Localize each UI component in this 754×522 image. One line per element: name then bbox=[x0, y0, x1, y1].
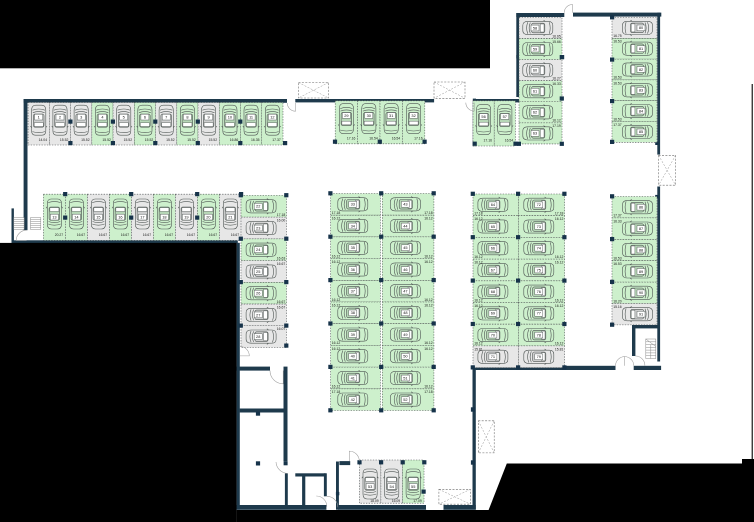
svg-text:17: 17 bbox=[140, 214, 144, 219]
svg-text:3: 3 bbox=[80, 115, 82, 120]
svg-text:15.52: 15.52 bbox=[102, 138, 111, 142]
svg-text:65: 65 bbox=[491, 224, 495, 229]
svg-text:17.18: 17.18 bbox=[424, 211, 433, 215]
svg-text:20.27: 20.27 bbox=[55, 233, 64, 237]
svg-text:58: 58 bbox=[533, 25, 537, 30]
svg-text:18.09: 18.09 bbox=[370, 499, 379, 503]
svg-text:16.07: 16.07 bbox=[277, 327, 286, 331]
svg-text:62: 62 bbox=[533, 110, 537, 115]
svg-text:67: 67 bbox=[491, 267, 495, 272]
svg-text:16.67: 16.67 bbox=[99, 233, 108, 237]
svg-text:16.12: 16.12 bbox=[424, 385, 433, 389]
svg-text:16.12: 16.12 bbox=[552, 119, 561, 123]
svg-text:16.12: 16.12 bbox=[474, 261, 483, 265]
svg-text:16.67: 16.67 bbox=[209, 233, 218, 237]
svg-text:16.54: 16.54 bbox=[369, 137, 378, 141]
svg-text:87: 87 bbox=[639, 226, 643, 231]
svg-text:16.12: 16.12 bbox=[332, 347, 341, 351]
svg-text:16.12: 16.12 bbox=[332, 298, 341, 302]
svg-text:16.12: 16.12 bbox=[332, 303, 341, 307]
svg-text:76: 76 bbox=[537, 289, 541, 294]
svg-text:83: 83 bbox=[639, 88, 643, 93]
svg-text:45: 45 bbox=[403, 245, 407, 250]
svg-text:16.12: 16.12 bbox=[332, 217, 341, 221]
svg-text:16.12: 16.12 bbox=[555, 298, 564, 302]
svg-text:36: 36 bbox=[351, 267, 355, 272]
svg-text:15.52: 15.52 bbox=[145, 138, 154, 142]
svg-text:37: 37 bbox=[351, 289, 355, 294]
svg-text:31: 31 bbox=[389, 113, 393, 118]
svg-text:16.67: 16.67 bbox=[165, 233, 174, 237]
svg-text:53: 53 bbox=[368, 484, 372, 489]
svg-text:68: 68 bbox=[491, 289, 495, 294]
svg-text:16.53: 16.53 bbox=[613, 76, 622, 80]
svg-text:8: 8 bbox=[186, 115, 188, 120]
svg-text:16.12: 16.12 bbox=[332, 341, 341, 345]
svg-text:16.12: 16.12 bbox=[424, 341, 433, 345]
svg-text:16.67: 16.67 bbox=[231, 233, 240, 237]
svg-text:17.16: 17.16 bbox=[347, 137, 356, 141]
svg-text:9: 9 bbox=[208, 115, 210, 120]
svg-text:82: 82 bbox=[639, 67, 643, 72]
svg-text:17.09: 17.09 bbox=[413, 499, 422, 503]
svg-text:16.35: 16.35 bbox=[251, 138, 260, 142]
svg-text:15.16: 15.16 bbox=[613, 305, 622, 309]
svg-text:16.53: 16.53 bbox=[613, 40, 622, 44]
svg-text:16.33: 16.33 bbox=[552, 82, 561, 86]
svg-text:16.12: 16.12 bbox=[424, 347, 433, 351]
svg-text:17.16: 17.16 bbox=[484, 139, 493, 143]
svg-text:16: 16 bbox=[118, 214, 122, 219]
svg-text:66: 66 bbox=[491, 246, 495, 251]
svg-text:16.12: 16.12 bbox=[332, 260, 341, 264]
svg-text:12: 12 bbox=[270, 115, 274, 120]
svg-text:35: 35 bbox=[351, 245, 355, 250]
svg-text:55: 55 bbox=[411, 484, 415, 489]
svg-text:88: 88 bbox=[639, 247, 643, 252]
svg-text:73: 73 bbox=[537, 224, 541, 229]
svg-text:15.52: 15.52 bbox=[60, 138, 69, 142]
svg-text:15: 15 bbox=[96, 214, 100, 219]
svg-text:16.12: 16.12 bbox=[424, 303, 433, 307]
svg-text:27: 27 bbox=[256, 312, 260, 317]
svg-text:22: 22 bbox=[256, 204, 260, 209]
svg-text:2: 2 bbox=[59, 115, 61, 120]
svg-text:15.52: 15.52 bbox=[166, 138, 175, 142]
svg-text:16.12: 16.12 bbox=[555, 217, 564, 221]
svg-text:25: 25 bbox=[256, 269, 260, 274]
svg-text:41: 41 bbox=[351, 375, 355, 380]
svg-text:15.81: 15.81 bbox=[474, 347, 483, 351]
svg-text:16.53: 16.53 bbox=[613, 81, 622, 85]
svg-text:15.66: 15.66 bbox=[552, 40, 561, 44]
svg-text:42: 42 bbox=[351, 397, 355, 402]
svg-text:63: 63 bbox=[533, 131, 537, 136]
svg-text:17.16: 17.16 bbox=[414, 137, 423, 141]
svg-text:1: 1 bbox=[38, 115, 40, 120]
svg-text:17.18: 17.18 bbox=[277, 213, 286, 217]
svg-text:23: 23 bbox=[256, 225, 260, 230]
svg-text:32: 32 bbox=[411, 113, 415, 118]
svg-text:57: 57 bbox=[503, 114, 507, 119]
svg-text:16.12: 16.12 bbox=[555, 261, 564, 265]
svg-text:16.12: 16.12 bbox=[332, 254, 341, 258]
svg-text:16.67: 16.67 bbox=[277, 262, 286, 266]
svg-text:16.12: 16.12 bbox=[424, 298, 433, 302]
svg-text:16.12: 16.12 bbox=[424, 217, 433, 221]
svg-text:16.54: 16.54 bbox=[392, 137, 401, 141]
svg-text:16.12: 16.12 bbox=[474, 298, 483, 302]
svg-text:17.18: 17.18 bbox=[474, 212, 483, 216]
svg-text:16.27: 16.27 bbox=[552, 77, 561, 81]
svg-text:43: 43 bbox=[403, 202, 407, 207]
svg-text:29: 29 bbox=[344, 113, 348, 118]
svg-text:16.63: 16.63 bbox=[277, 256, 286, 260]
svg-text:17.18: 17.18 bbox=[555, 212, 564, 216]
svg-text:47: 47 bbox=[403, 289, 407, 294]
svg-text:16.53: 16.53 bbox=[613, 117, 622, 121]
svg-text:16.00: 16.00 bbox=[277, 219, 286, 223]
svg-text:85: 85 bbox=[639, 129, 643, 134]
svg-text:81: 81 bbox=[639, 46, 643, 51]
svg-text:49: 49 bbox=[403, 332, 407, 337]
svg-text:16.54: 16.54 bbox=[505, 139, 514, 143]
svg-text:17.37: 17.37 bbox=[272, 138, 281, 142]
svg-text:16.20: 16.20 bbox=[613, 299, 622, 303]
svg-text:78: 78 bbox=[537, 332, 541, 337]
svg-text:11: 11 bbox=[249, 115, 253, 120]
svg-text:21: 21 bbox=[228, 214, 232, 219]
svg-text:16.75: 16.75 bbox=[613, 34, 622, 38]
svg-text:7: 7 bbox=[165, 115, 167, 120]
svg-text:16.67: 16.67 bbox=[121, 233, 130, 237]
svg-text:17.18: 17.18 bbox=[332, 211, 341, 215]
svg-text:46: 46 bbox=[403, 267, 407, 272]
svg-text:13: 13 bbox=[52, 214, 56, 219]
svg-text:28: 28 bbox=[256, 334, 260, 339]
svg-text:61: 61 bbox=[533, 89, 537, 94]
svg-text:16.12: 16.12 bbox=[474, 255, 483, 259]
svg-text:16.12: 16.12 bbox=[424, 260, 433, 264]
svg-text:86: 86 bbox=[639, 205, 643, 210]
svg-text:16.12: 16.12 bbox=[555, 342, 564, 346]
svg-text:71: 71 bbox=[491, 354, 495, 359]
svg-text:16.53: 16.53 bbox=[613, 257, 622, 261]
svg-text:69: 69 bbox=[491, 311, 495, 316]
svg-text:17.19: 17.19 bbox=[552, 124, 561, 128]
svg-text:17.37: 17.37 bbox=[613, 214, 622, 218]
svg-text:52: 52 bbox=[403, 397, 407, 402]
svg-text:75: 75 bbox=[537, 267, 541, 272]
svg-text:16.86: 16.86 bbox=[230, 138, 239, 142]
svg-text:15.52: 15.52 bbox=[209, 138, 218, 142]
svg-text:14.04: 14.04 bbox=[39, 138, 48, 142]
svg-text:16.67: 16.67 bbox=[277, 305, 286, 309]
svg-text:16.65: 16.65 bbox=[552, 34, 561, 38]
svg-text:15.52: 15.52 bbox=[187, 138, 196, 142]
svg-text:16.53: 16.53 bbox=[613, 262, 622, 266]
svg-text:38: 38 bbox=[351, 310, 355, 315]
svg-text:26: 26 bbox=[256, 291, 260, 296]
svg-text:16.67: 16.67 bbox=[77, 233, 86, 237]
svg-text:89: 89 bbox=[639, 269, 643, 274]
svg-text:5: 5 bbox=[123, 115, 125, 120]
svg-text:16.12: 16.12 bbox=[474, 304, 483, 308]
svg-text:16.67: 16.67 bbox=[187, 233, 196, 237]
svg-text:33: 33 bbox=[351, 202, 355, 207]
svg-text:15.52: 15.52 bbox=[81, 138, 90, 142]
svg-text:16.09: 16.09 bbox=[392, 499, 401, 503]
svg-text:16.33: 16.33 bbox=[613, 219, 622, 223]
svg-text:56: 56 bbox=[481, 114, 485, 119]
svg-text:17.37: 17.37 bbox=[613, 123, 622, 127]
svg-text:15.52: 15.52 bbox=[124, 138, 133, 142]
svg-text:16.67: 16.67 bbox=[277, 300, 286, 304]
svg-text:18: 18 bbox=[162, 214, 166, 219]
svg-text:16.12: 16.12 bbox=[555, 304, 564, 308]
svg-text:48: 48 bbox=[403, 310, 407, 315]
svg-text:15.81: 15.81 bbox=[555, 347, 564, 351]
svg-text:16.12: 16.12 bbox=[555, 255, 564, 259]
svg-text:16.67: 16.67 bbox=[143, 233, 152, 237]
svg-text:16.12: 16.12 bbox=[474, 217, 483, 221]
svg-text:77: 77 bbox=[537, 311, 541, 316]
svg-text:79: 79 bbox=[537, 354, 541, 359]
svg-text:16.12: 16.12 bbox=[474, 342, 483, 346]
svg-text:17.18: 17.18 bbox=[424, 390, 433, 394]
svg-text:91: 91 bbox=[639, 312, 643, 317]
svg-text:39: 39 bbox=[351, 332, 355, 337]
svg-text:6: 6 bbox=[144, 115, 146, 120]
svg-text:51: 51 bbox=[403, 375, 407, 380]
svg-text:16.12: 16.12 bbox=[424, 254, 433, 258]
svg-text:72: 72 bbox=[537, 202, 541, 207]
svg-text:19: 19 bbox=[184, 214, 188, 219]
svg-text:16.12: 16.12 bbox=[332, 385, 341, 389]
svg-text:59: 59 bbox=[533, 47, 537, 52]
svg-text:17.18: 17.18 bbox=[332, 390, 341, 394]
